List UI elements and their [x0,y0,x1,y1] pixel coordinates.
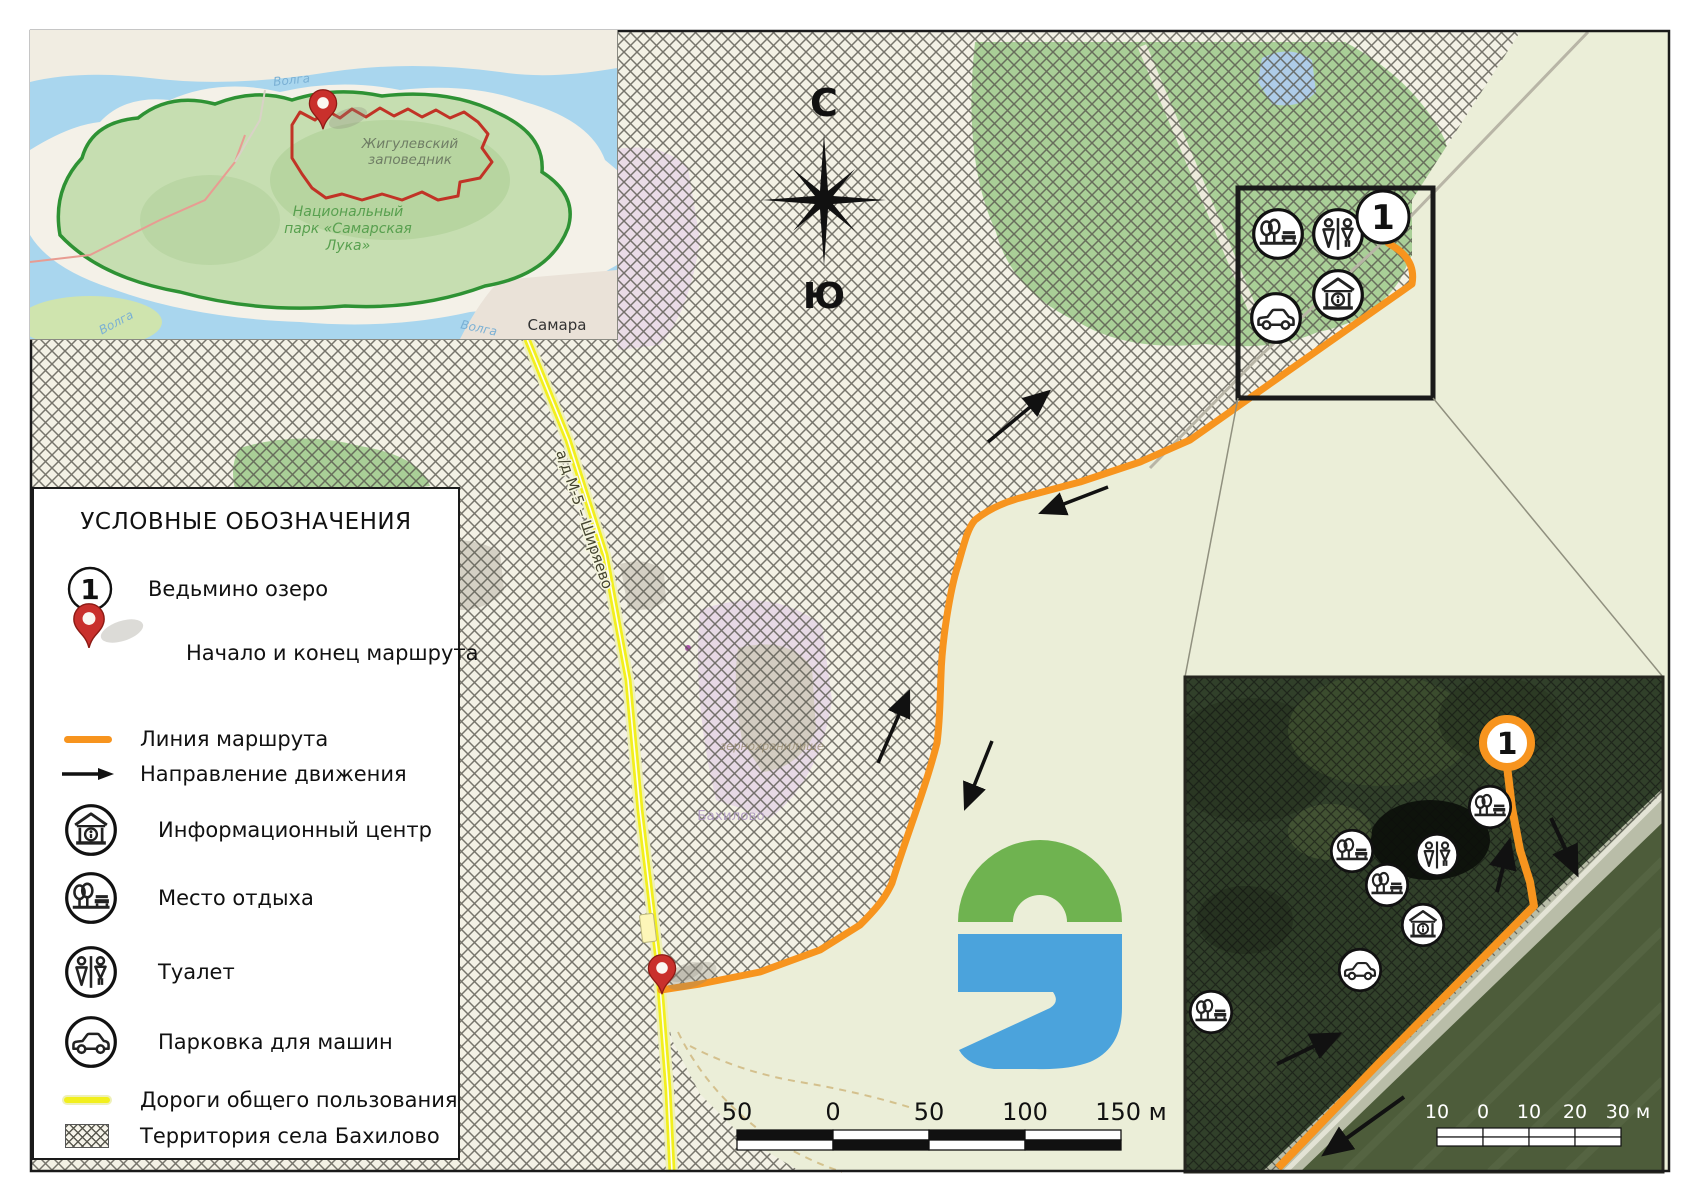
page: а/д М-5 – Ширяево Бахилово зернохранилищ… [0,0,1700,1202]
svg-text:150 м: 150 м [1095,1098,1167,1126]
village-hatch-swatch [65,1124,109,1148]
legend-item-start-end: Начало и конец маршрута [34,597,458,687]
legend-item-parking: Парковка для машин [34,1015,458,1069]
svg-text:20: 20 [1563,1101,1587,1123]
info-center-icon [1402,904,1443,945]
park-label: Лука» [325,238,371,254]
legend-label: Информационный центр [158,803,432,857]
legend-item-toilet: Туалет [34,945,458,999]
legend: УСЛОВНЫЕ ОБОЗНАЧЕНИЯ 1 Ведьмино озеро На… [32,487,460,1160]
legend-label: Парковка для машин [158,1015,393,1069]
parking-icon [1252,294,1301,343]
pin-icon [64,599,154,659]
legend-item-direction: Направление движения [34,759,458,789]
svg-text:10: 10 [1517,1101,1541,1123]
rest-area-icon [1254,210,1303,259]
rest-area-icon [1331,830,1372,871]
legend-item-village: Территория села Бахилово [34,1121,458,1151]
svg-text:100: 100 [1002,1098,1048,1126]
toilet-icon [1314,210,1363,259]
legend-item-route: Линия маршрута [34,725,458,753]
rest-area-icon [1190,991,1231,1032]
svg-text:1: 1 [1371,198,1395,238]
svg-text:0: 0 [1477,1101,1489,1123]
legend-item-rest-area: Место отдыха [34,871,458,925]
rest-area-icon [64,871,118,925]
route-line-swatch [64,736,112,743]
legend-label: Место отдыха [158,871,314,925]
public-road-swatch [64,1097,110,1103]
svg-text:50: 50 [722,1098,753,1126]
road-shield [639,913,656,942]
legend-item-public-road: Дороги общего пользования [34,1086,458,1114]
svg-text:1: 1 [1497,727,1518,762]
info-center-icon [64,803,118,857]
reserve-label: заповедник [368,152,453,168]
legend-label: Туалет [158,945,235,999]
info-center-icon [1314,271,1363,320]
compass-north-label: С [810,81,838,125]
park-label: парк «Самарская [284,221,412,237]
legend-label: Линия маршрута [140,725,328,753]
city-label: Самара [528,316,587,334]
legend-label: Территория села Бахилово [140,1121,440,1151]
barn-label: зернохранилище [720,739,824,753]
village-label: Бахилово [697,808,764,824]
svg-text:30 м: 30 м [1606,1101,1651,1123]
rest-area-icon [1366,864,1407,905]
toilet-icon [1416,834,1457,875]
parking-icon [64,1015,118,1069]
point-1-marker: 1 [1357,191,1409,243]
svg-text:50: 50 [914,1098,945,1126]
svg-text:10: 10 [1425,1101,1449,1123]
overview-map: Жигулевский заповедник Национальный парк… [30,30,617,339]
compass-south-label: Ю [803,276,845,317]
legend-label: Направление движения [140,759,407,789]
direction-arrow-icon [62,766,114,782]
detail-inset: 1 10 0 10 20 30 м [1148,674,1663,1172]
parking-icon [1339,949,1380,990]
svg-text:0: 0 [825,1098,840,1126]
overview-inset: Жигулевский заповедник Национальный парк… [30,30,618,340]
toilet-icon [64,945,118,999]
park-label: Национальный [293,204,404,220]
rest-area-icon [1469,786,1510,827]
legend-label: Начало и конец маршрута [186,641,478,665]
legend-label: Дороги общего пользования [140,1086,458,1114]
legend-item-info-center: Информационный центр [34,803,458,857]
legend-title: УСЛОВНЫЕ ОБОЗНАЧЕНИЯ [34,509,458,535]
inset-point-1-marker: 1 [1483,719,1531,767]
reserve-label: Жигулевский [361,136,459,152]
